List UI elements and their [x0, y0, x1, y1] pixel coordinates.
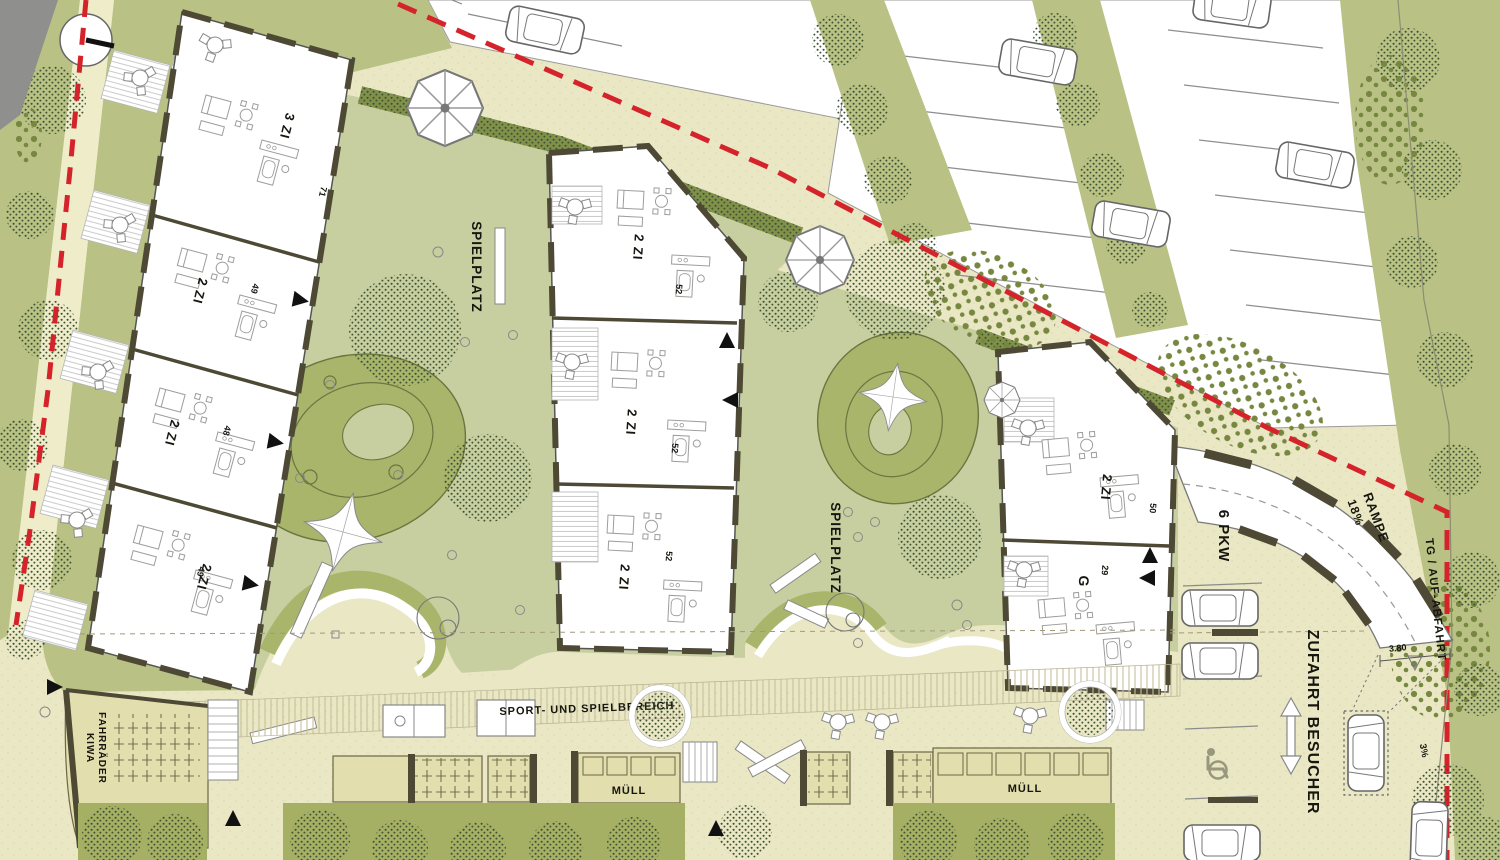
bench [495, 228, 505, 304]
bike-racks [112, 714, 200, 784]
unit-area: 52 [670, 443, 681, 454]
unit-area: 29 [1100, 565, 1111, 576]
waste-area-1: MÜLL [571, 751, 680, 805]
bike-label: FAHRRÄDER [96, 712, 109, 784]
stairs-left [208, 700, 238, 780]
unit-label: 2 ZI [1098, 474, 1115, 502]
visitor-access-label: ZUFAHRT BESUCHER [1304, 630, 1321, 815]
waste-label: MÜLL [1008, 782, 1043, 795]
waste-label: MÜLL [612, 784, 647, 797]
unit-label: 2 ZI [623, 409, 640, 436]
pkw-label: 6 PKW [1215, 510, 1232, 563]
playground-label-1: SPIELPLATZ [469, 221, 484, 313]
unit-label: 2 ZI [616, 564, 633, 591]
kiwa-label: KIWA [84, 733, 95, 763]
unit-area: 52 [674, 284, 685, 295]
building-middle: 2 ZI 52 2 ZI 52 2 ZI 52 [549, 146, 744, 652]
unit-area: 52 [664, 551, 675, 562]
unit-label: 2 ZI [630, 234, 647, 261]
unit-label: G [1075, 575, 1092, 588]
site-plan: RAMPE 18% TG / AUF-ABFAHRT 3.80 3 ZI 71 … [0, 0, 1500, 860]
stairs-middle [683, 742, 717, 782]
unit-area: 50 [1148, 503, 1159, 514]
playground-label-2: SPIELPLATZ [828, 502, 843, 594]
dimension-label: 3.80 [1389, 642, 1407, 653]
waste-area-2: MÜLL [933, 748, 1111, 804]
